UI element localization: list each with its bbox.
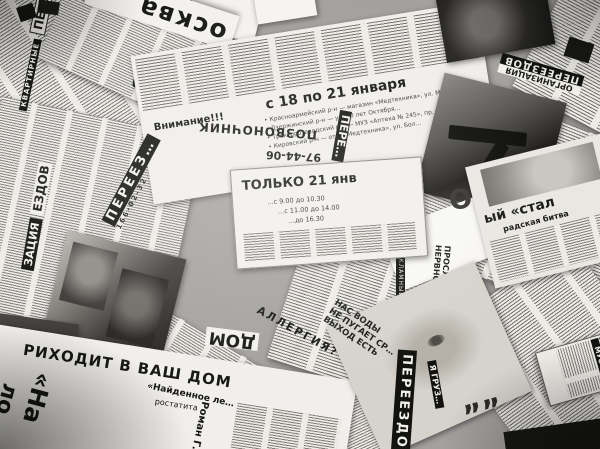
phone-top-text: 97-44-06 (266, 149, 322, 163)
sketch-eye-shape (426, 332, 447, 348)
blank-scrap (253, 0, 318, 24)
tolko-ad-scrap: ТОЛЬКО 21 янв …с 9.00 до 10.30 …с 11.00 … (230, 156, 429, 269)
newspaper-collage: осква кв КВАРТИРНЫЕ ПЕРЕЕЗ… Внимание!!! … (0, 0, 600, 449)
schedule-line: …до 16.30 (288, 214, 324, 226)
photo-frame (106, 268, 170, 348)
photo-frame (59, 242, 118, 311)
dom-text: ДОМ (205, 327, 259, 351)
na-big-text: «На (18, 370, 56, 427)
black-badge (37, 0, 60, 15)
gun-shape (448, 125, 527, 147)
text-columns (225, 403, 341, 449)
tolko-headline: ТОЛЬКО 21 янв (241, 172, 357, 194)
text-columns (243, 222, 417, 262)
